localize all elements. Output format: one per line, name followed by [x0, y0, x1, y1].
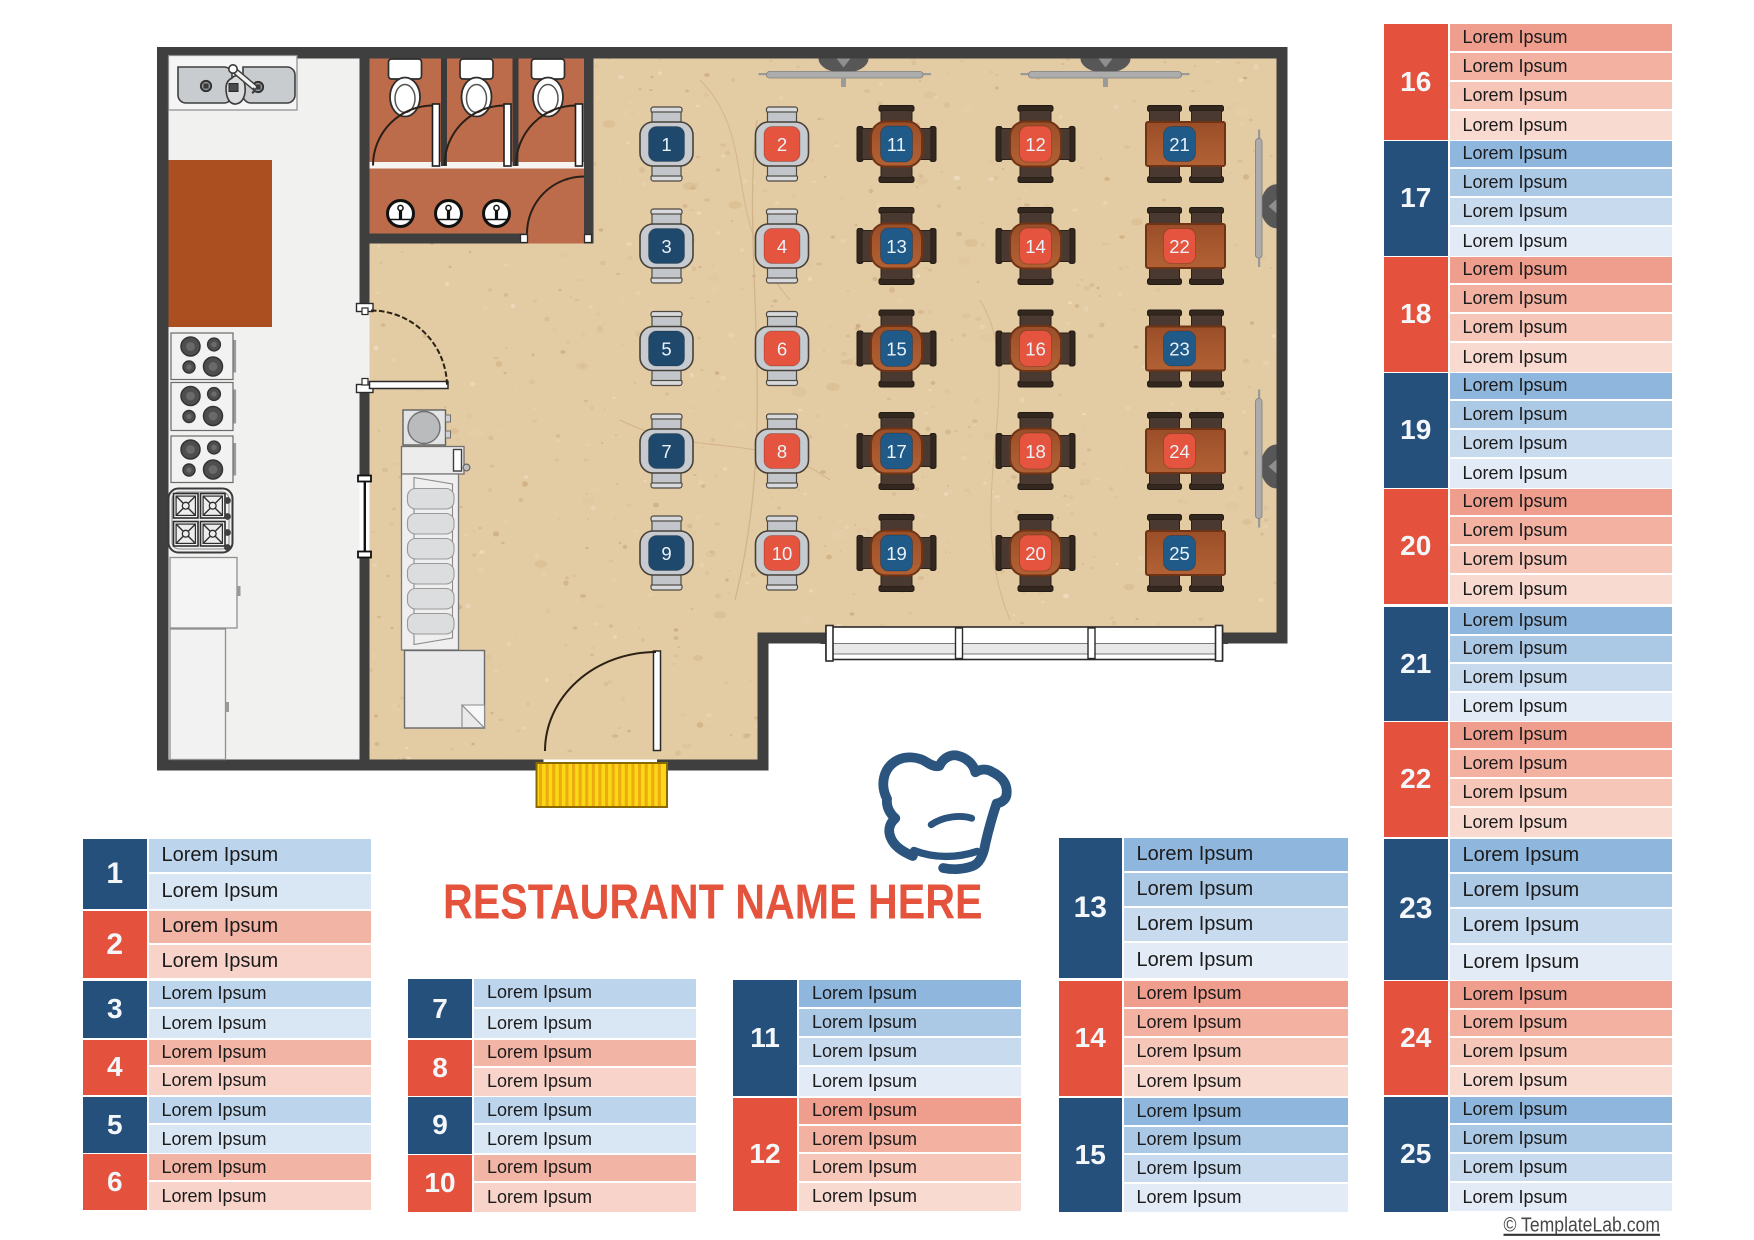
svg-text:17: 17	[886, 441, 907, 462]
svg-text:2: 2	[777, 134, 787, 155]
svg-text:19: 19	[886, 543, 907, 564]
svg-text:9: 9	[661, 543, 671, 564]
svg-text:10: 10	[772, 543, 793, 564]
svg-text:12: 12	[1025, 134, 1046, 155]
svg-text:3: 3	[661, 236, 671, 257]
svg-text:7: 7	[661, 441, 671, 462]
svg-text:22: 22	[1169, 236, 1190, 257]
svg-text:RESTAURANT NAME HERE: RESTAURANT NAME HERE	[443, 876, 983, 930]
svg-text:11: 11	[887, 134, 906, 155]
svg-text:16: 16	[1025, 338, 1046, 359]
svg-text:4: 4	[777, 236, 787, 257]
svg-text:25: 25	[1169, 543, 1190, 564]
svg-text:1: 1	[661, 134, 671, 155]
svg-text:20: 20	[1025, 543, 1046, 564]
svg-text:23: 23	[1169, 338, 1190, 359]
svg-text:5: 5	[661, 338, 671, 359]
svg-text:13: 13	[886, 236, 907, 257]
svg-text:24: 24	[1169, 441, 1190, 462]
svg-text:15: 15	[886, 338, 907, 359]
svg-text:8: 8	[777, 441, 787, 462]
svg-text:14: 14	[1025, 236, 1046, 257]
svg-text:6: 6	[777, 338, 787, 359]
svg-text:© TemplateLab.com: © TemplateLab.com	[1504, 1215, 1661, 1237]
svg-text:21: 21	[1169, 134, 1190, 155]
svg-text:18: 18	[1025, 441, 1046, 462]
